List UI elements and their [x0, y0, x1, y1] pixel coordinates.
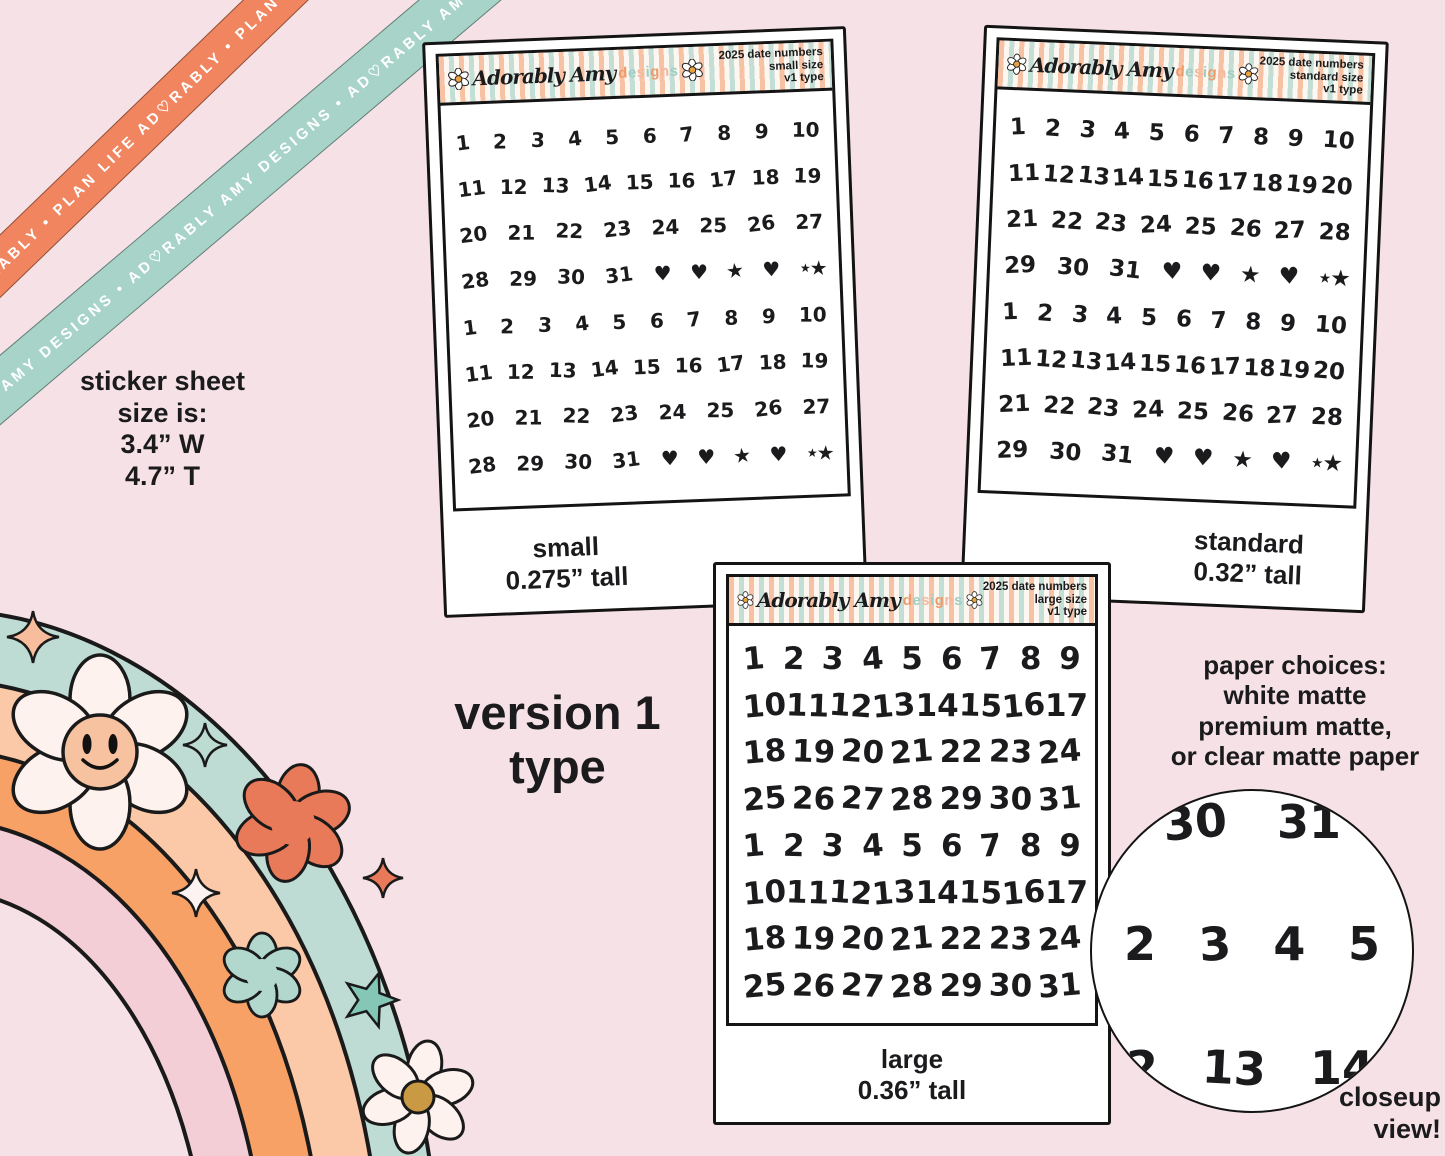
sticker-row: 28293031♥♥★♥⋆★ — [461, 255, 826, 293]
size-note: sticker sheet size is: 3.4” W 4.7” T — [20, 366, 305, 492]
note-line: paper choices: — [1125, 650, 1445, 680]
date-number-sticker: 6 — [1175, 305, 1193, 332]
date-number-sticker: 21 — [515, 405, 543, 429]
sticker-row: 28293031♥♥★♥⋆★ — [468, 440, 833, 478]
date-number-sticker: 19 — [800, 348, 829, 373]
date-number-sticker: 5 — [901, 828, 923, 864]
date-number-sticker: 5 — [1141, 304, 1158, 331]
date-number-sticker: 30 — [1048, 438, 1082, 466]
date-number-sticker: 6 — [940, 640, 963, 677]
date-number-sticker: 4 — [860, 827, 885, 865]
date-number-sticker: 10 — [799, 302, 827, 326]
date-number-sticker: 9 — [1286, 125, 1305, 153]
paper-choices-note: paper choices: white matte premium matte… — [1125, 650, 1445, 772]
closeup-number: 5 — [1348, 917, 1380, 971]
date-number-sticker: 9 — [1279, 309, 1298, 337]
date-number-sticker: 24 — [1132, 396, 1165, 423]
sticker-row: 293031♥♥★♥⋆★ — [1004, 252, 1350, 292]
version-note: version 1 type — [395, 686, 720, 794]
date-number-sticker: 12 — [1034, 345, 1068, 373]
date-number-sticker: 7 — [686, 306, 703, 332]
note-line: version 1 — [395, 686, 720, 740]
sticker-row: 1011121314151617 — [743, 688, 1081, 724]
sticker-grid: 1234567891011121314151617181920212223242… — [441, 91, 848, 509]
sticker-row: 111213141516171819 — [457, 163, 822, 201]
date-number-sticker: 23 — [609, 400, 640, 427]
date-number-sticker: 2 — [1044, 115, 1062, 142]
date-number-sticker: 7 — [979, 827, 1004, 865]
date-number-sticker: 22 — [562, 403, 591, 428]
symbol-sticker: ★ — [732, 442, 751, 468]
date-number-sticker: 2 — [782, 640, 805, 677]
gold-daisy-icon — [359, 1038, 478, 1156]
note-line: view! — [1281, 1114, 1441, 1146]
symbol-sticker: ♥ — [762, 257, 779, 282]
symbol-sticker: ♥ — [1161, 259, 1181, 286]
brand-name: Adorably Amy — [472, 61, 616, 90]
date-number-sticker: 15 — [1139, 350, 1172, 377]
date-number-sticker: 25 — [1176, 398, 1209, 425]
sheet-title: 2025 date numbers small size v1 type — [718, 46, 824, 88]
date-number-sticker: 2 — [1036, 300, 1054, 327]
date-number-sticker: 1 — [1009, 114, 1026, 141]
date-number-sticker: 24 — [1139, 212, 1172, 239]
date-number-sticker: 28 — [889, 779, 935, 819]
daisy-icon — [966, 589, 983, 611]
date-number-sticker: 7 — [1210, 307, 1227, 334]
date-number-sticker: 2 — [493, 130, 507, 154]
closeup-number: 4 — [1273, 917, 1305, 971]
date-number-sticker: 15 — [958, 874, 1002, 911]
symbol-sticker: ♥ — [1270, 448, 1290, 475]
date-number-sticker: 12 — [500, 175, 528, 199]
date-number-sticker: 27 — [1266, 402, 1299, 429]
date-number-sticker: 10 — [742, 873, 788, 913]
sticker-row: 11121314151617181920 — [1007, 160, 1353, 200]
date-number-sticker: 27 — [795, 209, 824, 234]
note-line: or clear matte paper — [1125, 741, 1445, 771]
sheet-title-line: 2025 date numbers — [983, 581, 1087, 594]
date-number-sticker: 21 — [998, 390, 1031, 417]
daisy-icon — [737, 589, 754, 611]
date-number-sticker: 17 — [1045, 688, 1088, 724]
sticker-row: 123456789 — [743, 641, 1081, 677]
date-number-sticker: 23 — [602, 216, 633, 243]
date-number-sticker: 21 — [507, 221, 535, 245]
date-number-sticker: 5 — [605, 125, 620, 150]
date-number-sticker: 28 — [889, 966, 935, 1006]
date-number-sticker: 19 — [793, 163, 822, 188]
sheet-title-line: v1 type — [983, 606, 1087, 619]
date-number-sticker: 14 — [916, 875, 959, 911]
date-number-sticker: 20 — [458, 221, 489, 248]
sticker-sheet-area: Adorably Amy designs 2025 date numbers s… — [436, 39, 851, 512]
symbol-sticker: ⋆★ — [805, 440, 832, 465]
date-number-sticker: 30 — [1056, 254, 1090, 282]
date-number-sticker: 4 — [860, 640, 885, 678]
brand-name: Adorably Amy — [1029, 53, 1173, 83]
symbol-sticker: ♥ — [1278, 264, 1298, 291]
date-number-sticker: 27 — [840, 967, 886, 1006]
date-number-sticker: 15 — [632, 354, 661, 379]
date-number-sticker: 13 — [1076, 162, 1111, 191]
date-number-sticker: 30 — [988, 780, 1032, 817]
symbol-sticker: ★ — [725, 258, 744, 284]
date-number-sticker: 20 — [840, 733, 886, 772]
sticker-row: 2021222324252627 — [459, 209, 824, 247]
date-number-sticker: 26 — [753, 394, 784, 421]
symbol-sticker: ♥ — [660, 446, 677, 471]
closeup-number: 2 — [1124, 917, 1156, 971]
sheet-title-line: large size — [983, 594, 1087, 607]
symbol-sticker: ♥ — [653, 261, 670, 286]
date-number-sticker: 22 — [1042, 392, 1076, 420]
date-number-sticker: 11 — [1007, 160, 1040, 187]
date-number-sticker: 9 — [761, 304, 776, 328]
sticker-row: 293031♥♥★♥⋆★ — [996, 437, 1342, 477]
date-number-sticker: 25 — [742, 779, 788, 819]
date-number-sticker: 26 — [792, 967, 836, 1004]
date-number-sticker: 27 — [1273, 217, 1306, 244]
sticker-row: 12345678910 — [463, 302, 828, 340]
sparkle-icon — [172, 869, 220, 917]
sticker-row: 2122232425262728 — [998, 390, 1344, 430]
date-number-sticker: 17 — [715, 350, 746, 377]
date-number-sticker: 22 — [940, 734, 983, 770]
date-number-sticker: 31 — [611, 446, 642, 473]
date-number-sticker: 11 — [786, 874, 830, 911]
date-number-sticker: 1 — [455, 130, 472, 156]
date-number-sticker: 8 — [1252, 124, 1269, 151]
date-number-sticker: 28 — [460, 267, 491, 294]
sheet-header: Adorably Amy designs 2025 date numbers l… — [729, 577, 1095, 626]
sticker-sheet-small: Adorably Amy designs 2025 date numbers s… — [422, 26, 868, 618]
closeup-number: 31 — [1277, 795, 1341, 849]
date-number-sticker: 15 — [958, 687, 1002, 724]
daisy-icon — [1006, 53, 1027, 76]
brand-designs: designs — [1175, 62, 1236, 82]
sticker-sheet-area: Adorably Amy designs 2025 date numbers s… — [978, 37, 1376, 508]
daisy-icon — [1238, 62, 1259, 85]
sticker-row: 25262728293031 — [743, 968, 1081, 1004]
date-number-sticker: 8 — [724, 305, 739, 330]
sparkle-icon — [183, 723, 227, 767]
date-number-sticker: 28 — [1318, 219, 1351, 246]
brand-logo: Adorably Amy designs — [447, 58, 704, 92]
sheet-title-line: v1 type — [719, 71, 824, 88]
date-number-sticker: 2 — [500, 314, 514, 338]
date-number-sticker: 3 — [537, 312, 552, 336]
symbol-sticker: ♥ — [1153, 443, 1173, 470]
sticker-row: 12345678910 — [1009, 114, 1355, 154]
date-number-sticker: 25 — [1184, 214, 1217, 241]
label-line: large — [716, 1044, 1108, 1075]
date-number-sticker: 10 — [742, 686, 788, 726]
symbol-sticker: ⋆★ — [798, 256, 825, 281]
date-number-sticker: 19 — [792, 921, 836, 958]
date-number-sticker: 21 — [889, 920, 935, 960]
date-number-sticker: 31 — [1036, 779, 1082, 819]
date-number-sticker: 25 — [742, 966, 788, 1006]
closeup-number: 3 — [1197, 916, 1233, 972]
date-number-sticker: 30 — [988, 967, 1032, 1004]
date-number-sticker: 10 — [1314, 311, 1348, 339]
date-number-sticker: 22 — [1050, 208, 1084, 236]
product-listing-image: PLAN LIFE AD♡RABLY • PLAN LIFE AD♡RABLY … — [0, 0, 1445, 1156]
date-number-sticker: 12 — [828, 686, 874, 725]
date-number-sticker: 23 — [988, 921, 1032, 958]
date-number-sticker: 31 — [1108, 256, 1143, 285]
date-number-sticker: 26 — [1221, 399, 1255, 427]
note-line: 4.7” T — [20, 461, 305, 493]
sticker-row: 2122232425262728 — [1005, 206, 1351, 246]
date-number-sticker: 14 — [582, 170, 613, 197]
date-number-sticker: 11 — [786, 687, 830, 724]
sticker-grid: 1234567891011121314151617181920212223242… — [729, 626, 1095, 1023]
date-number-sticker: 29 — [940, 968, 983, 1004]
date-number-sticker: 16 — [1000, 873, 1046, 913]
date-number-sticker: 28 — [467, 452, 498, 479]
date-number-sticker: 3 — [821, 827, 845, 864]
date-number-sticker: 12 — [507, 359, 535, 383]
date-number-sticker: 14 — [1104, 349, 1137, 376]
date-number-sticker: 7 — [979, 640, 1004, 678]
note-line: size is: — [20, 398, 305, 430]
date-number-sticker: 8 — [1020, 641, 1042, 677]
date-number-sticker: 30 — [564, 449, 593, 474]
date-number-sticker: 5 — [901, 641, 923, 677]
date-number-sticker: 16 — [668, 169, 696, 193]
symbol-sticker: ♥ — [1192, 445, 1212, 472]
date-number-sticker: 28 — [1310, 404, 1343, 431]
symbol-sticker: ♥ — [697, 445, 713, 469]
date-number-sticker: 8 — [1020, 828, 1042, 864]
symbol-sticker: ♥ — [769, 442, 786, 467]
sticker-sheet-standard: Adorably Amy designs 2025 date numbers s… — [960, 25, 1389, 613]
date-number-sticker: 18 — [1243, 355, 1276, 382]
sticker-row: 2021222324252627 — [466, 394, 831, 432]
date-number-sticker: 24 — [658, 399, 687, 424]
date-number-sticker: 3 — [1078, 116, 1097, 144]
date-number-sticker: 20 — [1320, 173, 1354, 201]
sheet-title: 2025 date numbers large size v1 type — [983, 581, 1087, 619]
date-number-sticker: 19 — [792, 734, 836, 771]
date-number-sticker: 11 — [456, 175, 487, 202]
rainbow-decoration — [0, 556, 600, 1156]
note-line: premium matte, — [1125, 711, 1445, 741]
date-number-sticker: 29 — [996, 436, 1029, 463]
closeup-row: 3031 — [1092, 795, 1412, 849]
date-number-sticker: 3 — [530, 128, 545, 152]
sticker-row: 12345678910 — [1002, 298, 1348, 338]
date-number-sticker: 30 — [557, 265, 586, 290]
sticker-row: 25262728293031 — [743, 781, 1081, 817]
brand-designs: designs — [903, 592, 963, 609]
date-number-sticker: 7 — [1218, 123, 1235, 150]
note-line: type — [395, 740, 720, 794]
date-number-sticker: 1 — [1002, 298, 1019, 325]
date-number-sticker: 23 — [988, 734, 1032, 771]
date-number-sticker: 16 — [675, 353, 703, 377]
date-number-sticker: 13 — [1068, 346, 1103, 375]
date-number-sticker: 23 — [1094, 209, 1129, 238]
sticker-sheet-area: Adorably Amy designs 2025 date numbers l… — [726, 574, 1098, 1026]
date-number-sticker: 14 — [1112, 164, 1145, 191]
note-line: sticker sheet — [20, 366, 305, 398]
date-number-sticker: 25 — [706, 398, 734, 422]
sheet-size-label: large 0.36” tall — [716, 1044, 1108, 1106]
date-number-sticker: 19 — [1277, 355, 1312, 384]
closeup-number: 13 — [1201, 1039, 1268, 1096]
date-number-sticker: 31 — [604, 262, 635, 289]
date-number-sticker: 26 — [1228, 215, 1262, 243]
date-number-sticker: 16 — [1173, 351, 1207, 379]
date-number-sticker: 21 — [1005, 206, 1038, 233]
date-number-sticker: 29 — [1004, 252, 1037, 279]
date-number-sticker: 18 — [758, 349, 787, 374]
closeup-note: closeup view! — [1281, 1082, 1441, 1145]
teal-star-icon — [338, 965, 404, 1030]
sticker-sheet-large: Adorably Amy designs 2025 date numbers l… — [713, 562, 1111, 1125]
date-number-sticker: 13 — [871, 686, 917, 726]
sticker-row: 11121314151617181920 — [1000, 344, 1346, 384]
date-number-sticker: 14 — [589, 355, 620, 382]
date-number-sticker: 4 — [1106, 303, 1123, 330]
date-number-sticker: 15 — [625, 170, 654, 195]
date-number-sticker: 11 — [463, 359, 494, 386]
date-number-sticker: 14 — [916, 688, 959, 724]
label-line: 0.36” tall — [716, 1075, 1108, 1106]
sticker-row: 1011121314151617 — [743, 875, 1081, 911]
date-number-sticker: 1 — [462, 314, 479, 340]
date-number-sticker: 29 — [509, 267, 537, 291]
date-number-sticker: 6 — [643, 124, 657, 148]
date-number-sticker: 25 — [699, 214, 727, 238]
date-number-sticker: 24 — [651, 215, 680, 240]
closeup-row: 2345 — [1092, 917, 1412, 971]
date-number-sticker: 4 — [574, 310, 591, 336]
sparkle-icon — [363, 858, 403, 898]
note-line: 3.4” W — [20, 429, 305, 461]
date-number-sticker: 5 — [612, 309, 627, 334]
symbol-sticker: ★ — [1231, 446, 1252, 473]
date-number-sticker: 2 — [782, 827, 805, 864]
date-number-sticker: 15 — [1146, 166, 1179, 193]
date-number-sticker: 29 — [940, 781, 983, 817]
date-number-sticker: 1 — [741, 640, 766, 678]
symbol-sticker: ★ — [1239, 262, 1260, 289]
brand-logo: Adorably Amy designs — [1006, 52, 1260, 87]
brand-name: Adorably Amy — [757, 588, 900, 612]
date-number-sticker: 18 — [1251, 170, 1284, 197]
date-number-sticker: 17 — [1208, 353, 1241, 380]
date-number-sticker: 27 — [840, 780, 886, 819]
symbol-sticker: ♥ — [1200, 260, 1220, 287]
date-number-sticker: 10 — [1322, 127, 1356, 155]
date-number-sticker: 22 — [940, 921, 983, 957]
date-number-sticker: 9 — [754, 119, 769, 143]
date-number-sticker: 3 — [821, 640, 845, 677]
date-number-sticker: 6 — [650, 308, 664, 332]
date-number-sticker: 29 — [516, 451, 544, 475]
date-number-sticker: 17 — [1045, 875, 1088, 911]
date-number-sticker: 13 — [871, 873, 917, 913]
date-number-sticker: 5 — [1148, 120, 1165, 147]
date-number-sticker: 11 — [1000, 344, 1033, 371]
date-number-sticker: 20 — [1312, 357, 1346, 385]
date-number-sticker: 6 — [1183, 121, 1201, 148]
date-number-sticker: 12 — [828, 873, 874, 912]
date-number-sticker: 26 — [746, 210, 777, 237]
symbol-sticker: ♥ — [690, 260, 706, 284]
closeup-number: 12 — [1094, 1041, 1158, 1095]
sheet-title: 2025 date numbers standard size v1 type — [1258, 55, 1364, 97]
sticker-row: 111213141516171819 — [464, 348, 829, 386]
date-number-sticker: 19 — [1284, 171, 1319, 200]
symbol-sticker: ⋆★ — [1309, 450, 1341, 477]
coral-flower-icon — [230, 761, 355, 885]
date-number-sticker: 21 — [889, 732, 935, 772]
date-number-sticker: 9 — [1058, 640, 1082, 677]
sparkle-icon — [7, 611, 59, 663]
date-number-sticker: 9 — [1058, 827, 1082, 864]
date-number-sticker: 16 — [1181, 167, 1215, 195]
date-number-sticker: 26 — [792, 780, 836, 817]
date-number-sticker: 20 — [840, 920, 886, 959]
date-number-sticker: 23 — [1086, 393, 1121, 422]
date-number-sticker: 10 — [792, 118, 820, 142]
note-line: white matte — [1125, 680, 1445, 710]
date-number-sticker: 3 — [1070, 301, 1089, 329]
date-number-sticker: 17 — [1216, 169, 1249, 196]
date-number-sticker: 16 — [1000, 686, 1046, 726]
mint-flower-icon — [218, 933, 306, 1017]
closeup-number: 30 — [1161, 792, 1229, 851]
date-number-sticker: 4 — [566, 126, 583, 152]
sticker-grid: 1234567891011121314151617181920212223242… — [981, 89, 1370, 505]
symbol-sticker: ⋆★ — [1317, 265, 1349, 292]
brand-logo: Adorably Amy designs — [737, 588, 983, 612]
date-number-sticker: 27 — [802, 394, 831, 419]
date-number-sticker: 6 — [940, 827, 963, 864]
sticker-row: 123456789 — [743, 828, 1081, 864]
date-number-sticker: 22 — [555, 219, 584, 244]
date-number-sticker: 8 — [717, 121, 732, 146]
date-number-sticker: 13 — [541, 173, 570, 198]
date-number-sticker: 13 — [548, 357, 577, 382]
date-number-sticker: 31 — [1036, 966, 1082, 1006]
date-number-sticker: 18 — [742, 920, 788, 960]
sticker-row: 12345678910 — [456, 117, 821, 155]
date-number-sticker: 31 — [1100, 440, 1135, 469]
sticker-row: 18192021222324 — [743, 921, 1081, 957]
date-number-sticker: 7 — [678, 122, 695, 148]
date-number-sticker: 18 — [742, 732, 788, 772]
closeup-circle: 30312345121314 — [1090, 789, 1414, 1113]
note-line: closeup — [1281, 1082, 1441, 1114]
date-number-sticker: 12 — [1042, 161, 1076, 189]
date-number-sticker: 24 — [1036, 732, 1082, 772]
date-number-sticker: 17 — [708, 165, 739, 192]
date-number-sticker: 20 — [465, 406, 496, 433]
date-number-sticker: 4 — [1114, 118, 1131, 145]
daisy-icon — [447, 68, 470, 91]
brand-designs: designs — [618, 62, 679, 81]
date-number-sticker: 8 — [1245, 309, 1262, 336]
date-number-sticker: 1 — [741, 827, 766, 865]
date-number-sticker: 24 — [1036, 920, 1082, 960]
smiley-daisy-icon — [1, 655, 199, 849]
